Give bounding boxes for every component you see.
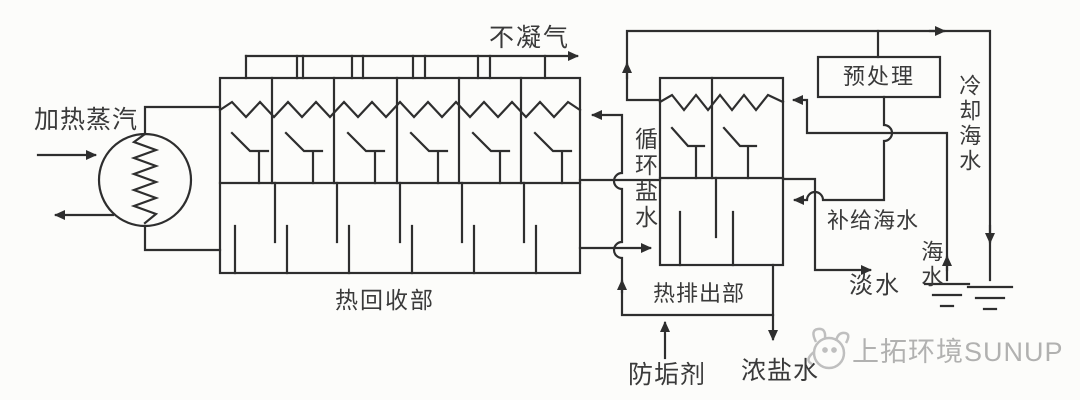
- condenser-tubes-icon: [660, 95, 783, 110]
- label-makeup-seawater: 补给海水: [827, 208, 919, 233]
- brine-heater-icon: [99, 134, 191, 226]
- stage-weirs: [680, 178, 733, 265]
- heat-recovery-vessel: [220, 56, 580, 273]
- label-heat-recovery-section: 热回收部: [335, 287, 435, 313]
- label-seawater: 海水: [918, 240, 943, 300]
- heater-coil-icon: [134, 134, 156, 223]
- sea-discharge-ground-icon: [968, 287, 1012, 309]
- label-anti-scalant: 防垢剂: [628, 361, 706, 390]
- label-circulating-brine: 循环盐水: [631, 127, 657, 257]
- label-heating-steam: 加热蒸汽: [34, 106, 138, 135]
- stage-weirs: [235, 183, 536, 273]
- label-heat-rejection-section: 热排出部: [653, 281, 745, 306]
- label-non-condensable-gas: 不凝气: [489, 24, 570, 53]
- label-pretreatment: 预处理: [818, 57, 940, 97]
- label-fresh-water: 淡水: [849, 272, 901, 300]
- vent-boxes: [246, 56, 545, 78]
- makeup-seawater-pipe: [795, 97, 892, 200]
- watermark-text: 上拓环境SUNUP: [852, 337, 1064, 368]
- brine-to-heater-pipe: [145, 107, 220, 134]
- demister-icons: [672, 128, 756, 178]
- condenser-tubes-icon: [220, 102, 580, 117]
- heat-rejection-vessel: [660, 78, 783, 265]
- heated-brine-pipe: [145, 226, 220, 250]
- msf-desalination-diagram: 加热蒸汽 不凝气 热回收部 热排出部 循环盐水 防垢剂 浓盐水 淡水 补给海水 …: [0, 0, 1080, 400]
- label-concentrated-brine: 浓盐水: [741, 357, 819, 386]
- label-cooling-seawater: 冷却海水: [956, 74, 981, 184]
